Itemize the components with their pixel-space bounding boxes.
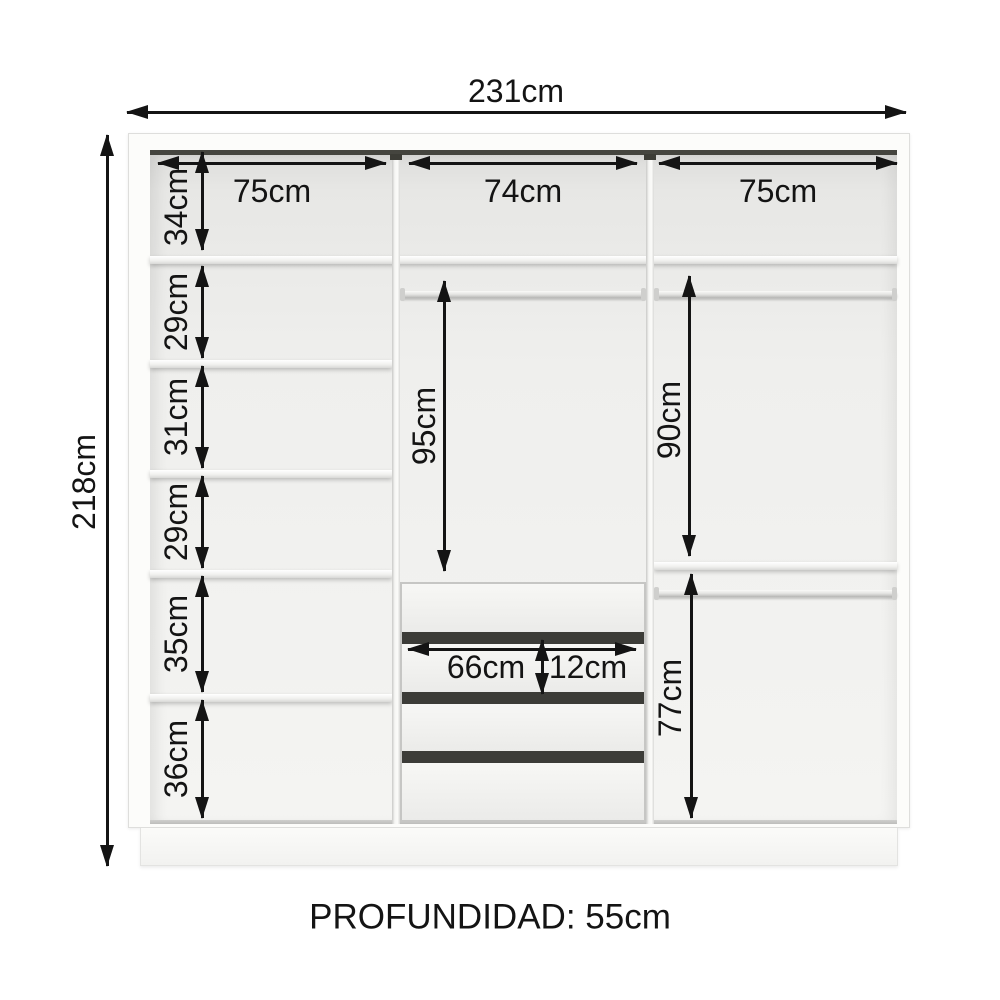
divider-left-middle — [392, 154, 400, 824]
left-shelf-2 — [150, 470, 392, 478]
dim-arrow-middle-width — [409, 162, 637, 165]
dim-arrow-right-width — [659, 162, 897, 165]
dim-label-left-h6: 36cm — [160, 720, 192, 798]
drawer-front-3 — [402, 704, 644, 751]
wardrobe-dimension-diagram: 231cm 218cm 75cm 74cm 75cm 34cm 29cm 31c… — [0, 0, 1000, 1000]
dim-label-right-lower-hanging: 77cm — [654, 659, 686, 737]
drawer-unit — [400, 582, 646, 822]
dim-label-drawer-width: 66cm — [447, 651, 525, 683]
dim-arrow-middle-hanging — [443, 281, 446, 571]
dim-arrow-right-upper-hanging — [688, 276, 691, 556]
dim-arrow-left-h3 — [201, 366, 204, 468]
left-shelf-4 — [150, 694, 392, 702]
dim-arrow-left-h6 — [201, 700, 204, 818]
interior-top-track — [150, 150, 897, 155]
dim-arrow-left-width — [158, 162, 386, 165]
dim-arrow-left-h4 — [201, 476, 204, 568]
wardrobe-interior — [150, 150, 897, 824]
dim-label-right-upper-hanging: 90cm — [653, 381, 685, 459]
dim-arrow-overall-height — [106, 135, 109, 866]
dim-label-left-h2: 29cm — [160, 273, 192, 351]
depth-note: PROFUNDIDAD: 55cm — [309, 900, 671, 935]
dim-arrow-left-h2 — [201, 266, 204, 358]
top-shelf — [150, 256, 897, 264]
left-shelf-1 — [150, 360, 392, 368]
dim-arrow-right-lower-hanging — [690, 574, 693, 818]
wardrobe-plinth — [140, 828, 898, 866]
right-shelf — [654, 562, 897, 570]
dim-label-left-h4: 29cm — [160, 483, 192, 561]
dim-label-left-h1: 34cm — [160, 168, 192, 246]
drawer-front-1 — [402, 584, 644, 632]
dim-arrow-left-h5 — [201, 576, 204, 692]
dim-label-middle-width: 74cm — [484, 175, 562, 207]
dim-label-overall-height: 218cm — [68, 434, 100, 530]
dim-label-left-h3: 31cm — [160, 378, 192, 456]
drawer-front-4 — [402, 763, 644, 820]
dim-label-right-width: 75cm — [739, 175, 817, 207]
wardrobe-cabinet — [128, 133, 910, 828]
left-shelf-3 — [150, 570, 392, 578]
dim-arrow-drawer-height — [541, 640, 544, 694]
dim-label-left-h5: 35cm — [160, 595, 192, 673]
dim-label-middle-hanging: 95cm — [408, 387, 440, 465]
dim-label-left-width: 75cm — [233, 175, 311, 207]
dim-label-drawer-height: 12cm — [549, 651, 627, 683]
dim-arrow-left-h1 — [201, 152, 204, 250]
dim-label-overall-width: 231cm — [468, 75, 564, 107]
dim-arrow-overall-width — [127, 111, 906, 114]
